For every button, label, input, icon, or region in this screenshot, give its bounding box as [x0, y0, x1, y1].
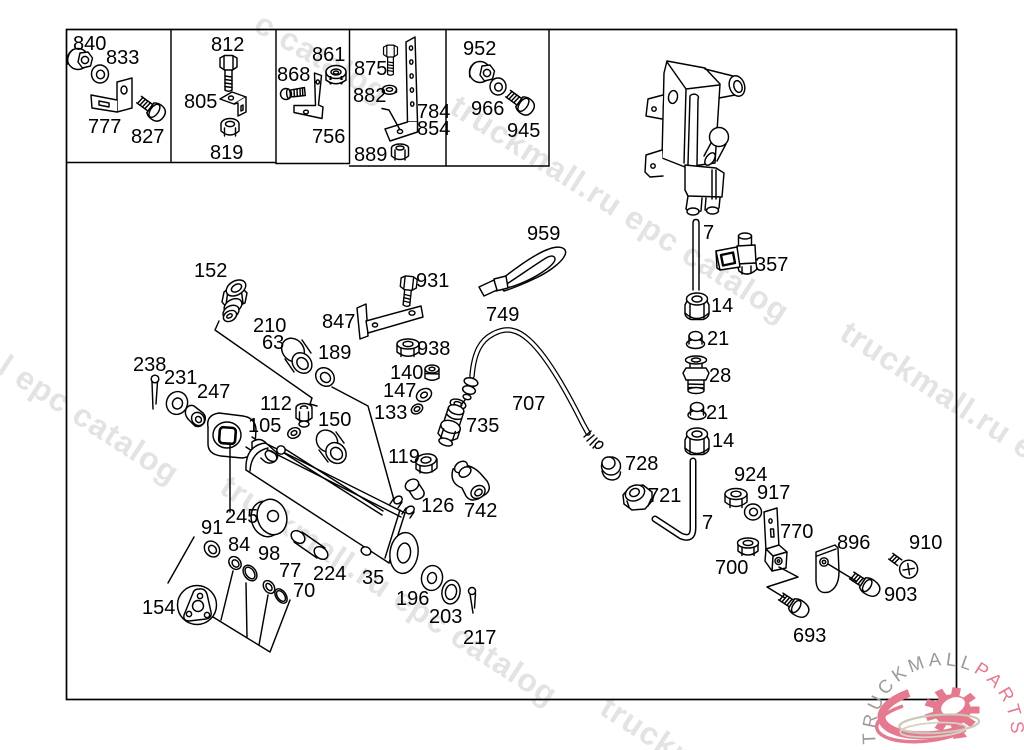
svg-text:133: 133 [374, 402, 407, 424]
svg-text:119: 119 [388, 446, 420, 468]
svg-text:98: 98 [258, 543, 280, 565]
svg-text:224: 224 [313, 563, 346, 585]
svg-text:882: 882 [353, 85, 386, 107]
svg-text:966: 966 [471, 98, 504, 120]
svg-text:756: 756 [312, 126, 345, 148]
svg-text:28: 28 [709, 365, 731, 387]
svg-text:805: 805 [184, 91, 217, 113]
svg-text:903: 903 [884, 584, 917, 606]
svg-text:189: 189 [318, 342, 351, 364]
svg-text:70: 70 [293, 580, 315, 602]
svg-text:150: 150 [318, 409, 351, 431]
svg-text:812: 812 [211, 34, 244, 56]
svg-text:152: 152 [194, 260, 227, 282]
svg-text:7: 7 [703, 222, 714, 244]
svg-text:875: 875 [354, 58, 387, 80]
svg-text:14: 14 [711, 295, 733, 317]
svg-text:700: 700 [715, 557, 748, 579]
svg-text:749: 749 [486, 304, 519, 326]
svg-text:770: 770 [780, 521, 813, 543]
svg-text:868: 868 [277, 64, 310, 86]
svg-text:931: 931 [416, 270, 449, 292]
svg-text:196: 196 [396, 588, 429, 610]
svg-text:truckmall.ru: truckmall.ru [594, 689, 778, 750]
svg-text:735: 735 [466, 415, 499, 437]
svg-text:truckmall.ru epc catalog: truckmall.ru epc catalog [834, 314, 1024, 559]
svg-text:861: 861 [312, 44, 345, 66]
svg-text:154: 154 [142, 597, 175, 619]
svg-text:14: 14 [712, 430, 734, 452]
svg-text:777: 777 [88, 116, 121, 138]
svg-text:938: 938 [417, 338, 450, 360]
svg-text:721: 721 [648, 485, 681, 507]
svg-text:819: 819 [210, 142, 243, 164]
svg-text:247: 247 [197, 381, 230, 403]
svg-text:707: 707 [512, 393, 545, 415]
svg-text:945: 945 [507, 120, 540, 142]
svg-text:77: 77 [279, 560, 301, 582]
svg-text:112: 112 [260, 393, 292, 415]
svg-text:231: 231 [164, 367, 197, 389]
svg-text:896: 896 [837, 532, 870, 554]
svg-text:35: 35 [362, 567, 384, 589]
svg-text:917: 917 [757, 482, 790, 504]
svg-text:357: 357 [755, 254, 788, 276]
svg-text:203: 203 [429, 606, 462, 628]
svg-text:959: 959 [527, 223, 560, 245]
svg-text:21: 21 [707, 328, 729, 350]
svg-text:7: 7 [702, 512, 713, 534]
svg-text:952: 952 [463, 38, 496, 60]
svg-text:847: 847 [322, 311, 355, 333]
svg-text:105: 105 [248, 415, 281, 437]
svg-text:238: 238 [133, 354, 166, 376]
svg-text:truckmall.ru epc catalog: truckmall.ru epc catalog [444, 88, 796, 330]
svg-text:910: 910 [909, 532, 942, 554]
svg-text:126: 126 [421, 495, 454, 517]
svg-text:889: 889 [354, 144, 387, 166]
svg-text:840: 840 [73, 33, 106, 55]
svg-text:91: 91 [201, 517, 223, 539]
svg-text:245: 245 [225, 506, 258, 528]
svg-text:63: 63 [262, 332, 284, 354]
svg-text:217: 217 [463, 627, 496, 649]
svg-text:21: 21 [706, 402, 728, 424]
svg-text:833: 833 [106, 47, 139, 69]
svg-text:147: 147 [383, 380, 416, 402]
svg-text:693: 693 [793, 625, 826, 647]
svg-text:827: 827 [131, 126, 164, 148]
svg-text:854: 854 [417, 118, 450, 140]
svg-text:742: 742 [464, 500, 497, 522]
svg-text:84: 84 [228, 534, 250, 556]
svg-text:728: 728 [625, 453, 658, 475]
